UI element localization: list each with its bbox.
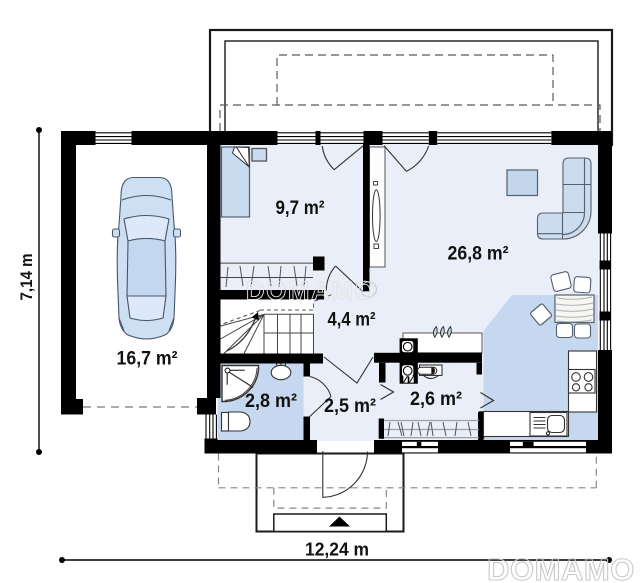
svg-text:12,24 m: 12,24 m [305, 540, 369, 560]
svg-text:7,14 m: 7,14 m [18, 254, 36, 301]
svg-text:2,5 m²: 2,5 m² [324, 395, 376, 417]
svg-text:DOMAMO: DOMAMO [487, 552, 635, 583]
svg-text:2,6 m²: 2,6 m² [410, 388, 462, 410]
svg-text:DOMAMO: DOMAMO [246, 276, 376, 306]
svg-text:16,7 m²: 16,7 m² [117, 348, 178, 370]
svg-text:26,8 m²: 26,8 m² [448, 243, 509, 265]
svg-text:9,7 m²: 9,7 m² [276, 197, 325, 219]
svg-text:2,8 m²: 2,8 m² [245, 390, 297, 412]
svg-text:4,4 m²: 4,4 m² [328, 309, 376, 331]
